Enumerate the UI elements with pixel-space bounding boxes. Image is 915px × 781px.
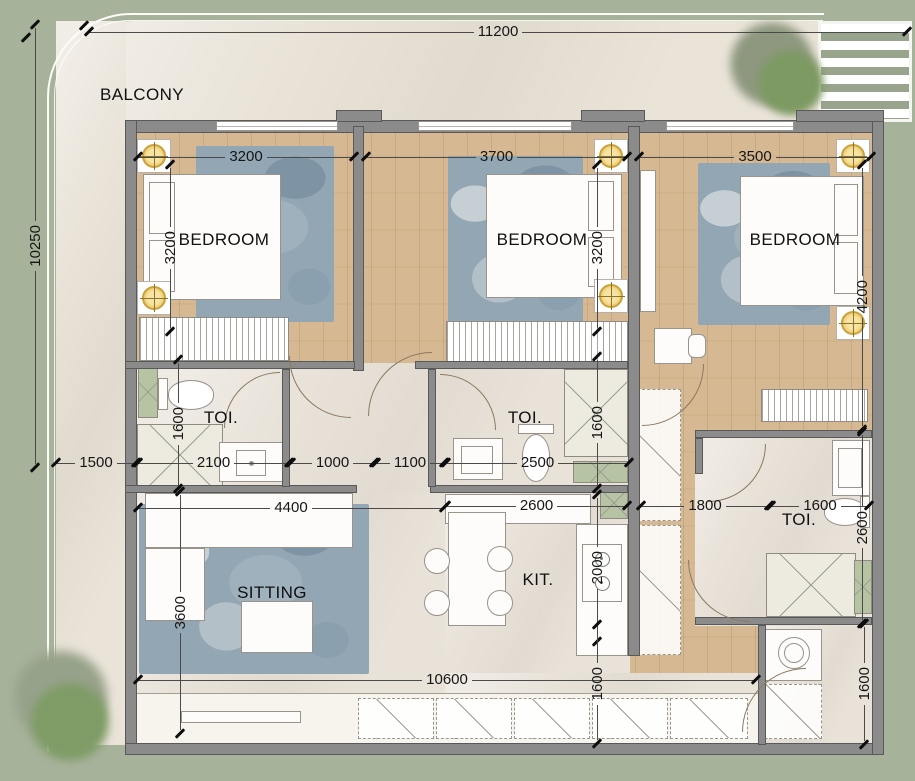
dim-label: 1500	[75, 454, 116, 471]
dim-label: 1000	[312, 454, 353, 471]
corridor-wardrobe	[637, 525, 681, 655]
toilet-left-label: TOI.	[204, 408, 238, 428]
service-shaft	[138, 366, 158, 418]
dining-chair	[424, 548, 450, 574]
window-panel	[436, 698, 512, 739]
dim-overall-top: 11200	[88, 24, 908, 40]
dim-overall-left: 10250	[27, 28, 43, 464]
wall-toilet-right-top	[695, 430, 872, 438]
kitchen-label: KIT.	[523, 570, 554, 590]
dining-chair	[487, 546, 513, 572]
toilet-tank	[158, 378, 168, 410]
wall-bedroom-divider-2	[628, 126, 640, 656]
dining-chair	[487, 590, 513, 616]
wall-toilet-right-side	[695, 438, 703, 474]
wall-toilet-right-bottom	[695, 617, 872, 625]
tree-canopy	[754, 48, 828, 118]
dim-label: 1600	[170, 403, 187, 444]
dim-label: 1800	[684, 497, 725, 514]
dim-label: 3200	[225, 148, 266, 165]
dim-label: 3200	[589, 227, 606, 268]
dim-label: 11200	[474, 23, 523, 40]
bedroom-middle-label: BEDROOM	[497, 230, 588, 250]
desk-chair	[688, 334, 706, 358]
floor-plan: 11200 3200 3700 3500 1500 2100 1000 1100…	[0, 0, 915, 781]
dim-label: 4400	[270, 499, 311, 516]
dim-label: 2600	[854, 507, 871, 548]
dim-toilet-left-depth: 1600	[170, 363, 186, 485]
dining-chair	[424, 590, 450, 616]
dim-kitchen-passage: 1600	[589, 628, 605, 740]
wall-left	[125, 120, 137, 755]
dim-tick	[30, 462, 41, 473]
dim-label: 2100	[193, 454, 234, 471]
dim-label: 10600	[422, 671, 472, 688]
wall-toilet-left-bottom	[125, 485, 357, 493]
dim-label: 2500	[517, 454, 558, 471]
dim-label: 2600	[516, 497, 557, 514]
dim-label: 1600	[589, 402, 606, 443]
dim-corridor-width: 1800	[640, 498, 770, 514]
dim-tick	[30, 19, 41, 30]
dim-bedroom-middle-depth: 3200	[589, 168, 605, 328]
dim-toilet-middle-depth: 1600	[589, 360, 605, 485]
dim-label: 3200	[162, 227, 179, 268]
washer-drum-icon	[784, 643, 804, 663]
window-panel	[514, 698, 590, 739]
bedroom-left-label: BEDROOM	[179, 230, 270, 250]
toilet-middle-label: TOI.	[508, 408, 542, 428]
dim-toilet-left-width: 2100	[137, 455, 290, 471]
corridor-cabinet	[640, 170, 656, 312]
dim-label: 1100	[390, 454, 430, 471]
dim-label: 1600	[799, 497, 840, 514]
dim-label: 4200	[854, 276, 871, 317]
balcony-floor-left	[56, 21, 126, 745]
dim-stove-run: 2000	[589, 498, 605, 638]
window-panel	[670, 698, 748, 739]
dim-bedroom-left-depth: 3200	[162, 168, 178, 328]
wall-cap	[581, 110, 645, 122]
dim-label: 1600	[589, 663, 606, 704]
dim-overall-bottom: 10600	[137, 672, 757, 688]
wall-cap	[796, 110, 884, 122]
bedroom-left-window	[216, 121, 338, 131]
window-panel	[358, 698, 434, 739]
dim-tick	[51, 457, 62, 468]
balcony-label: BALCONY	[100, 85, 184, 105]
dim-laundry-depth: 1600	[856, 627, 872, 741]
wall-right	[872, 120, 884, 755]
dim-sitting-depth: 3600	[172, 495, 188, 730]
tree-bottom-left	[8, 638, 126, 768]
dim-label: 10250	[27, 221, 44, 271]
dim-hall-width: 1100	[375, 455, 445, 471]
bedroom-right-label: BEDROOM	[750, 230, 841, 250]
dim-hall-door: 1000	[290, 455, 375, 471]
coffee-table	[241, 601, 313, 653]
sitting-label: SITTING	[237, 583, 307, 603]
wall-toilet-middle-bottom	[430, 485, 628, 493]
dim-label: 3600	[172, 592, 189, 633]
dim-label: 3500	[734, 148, 775, 165]
desk	[654, 328, 692, 364]
dim-bedroom-right-depth: 4200	[854, 168, 870, 426]
dim-bedroom-left-width: 3200	[137, 149, 355, 165]
wall-bottom	[125, 743, 884, 755]
shower	[766, 553, 856, 617]
dim-toilet-right-depth: 2600	[854, 435, 870, 620]
dim-label: 2000	[589, 547, 606, 588]
bedroom-right-window	[666, 121, 794, 131]
wall-cap	[336, 110, 382, 122]
dim-label: 1600	[856, 663, 873, 704]
dim-label: 3700	[476, 148, 517, 165]
bedroom-middle-window	[418, 121, 572, 131]
tv-console	[181, 711, 301, 723]
tree-canopy	[26, 680, 114, 764]
dim-bedroom-middle-width: 3700	[365, 149, 628, 165]
dim-bedroom-right-width: 3500	[638, 149, 872, 165]
bedroom-right-wardrobe	[761, 389, 868, 422]
dim-balcony-width: 1500	[55, 455, 137, 471]
